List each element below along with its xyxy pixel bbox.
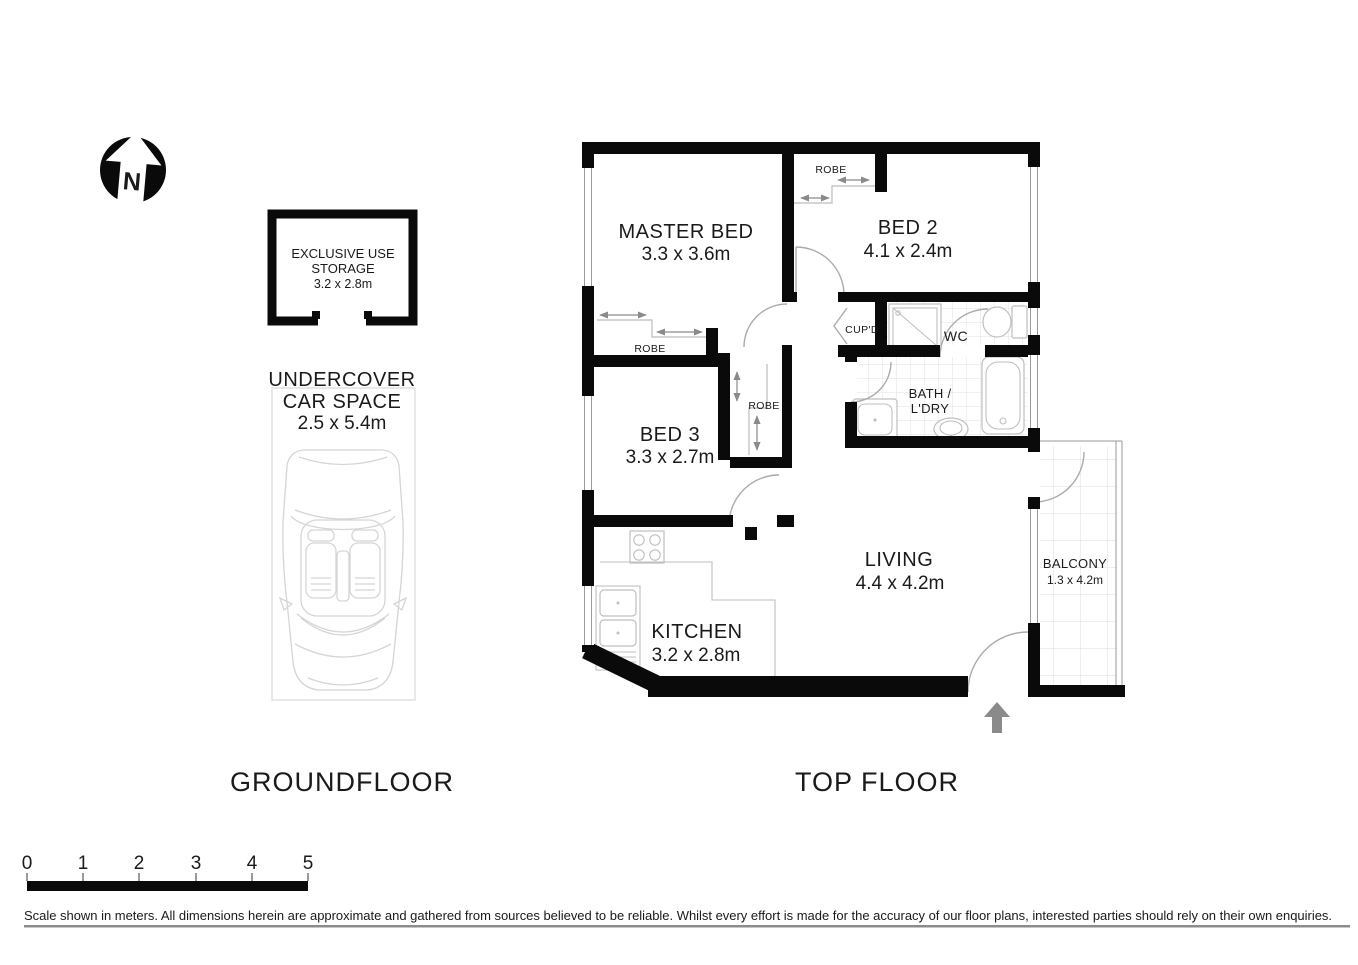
living-dims: 4.4 x 4.2m	[856, 573, 945, 594]
scale-tick-2: 2	[134, 853, 145, 874]
robe-master-label: ROBE	[634, 343, 665, 355]
scale-tick-1: 1	[78, 853, 89, 874]
master-door	[744, 304, 787, 347]
bed2-dims: 4.1 x 2.4m	[864, 241, 953, 262]
bed2-name: BED 2	[878, 217, 938, 239]
scale-tick-3: 3	[191, 853, 202, 874]
bathtub	[982, 357, 1024, 434]
topfloor-title: TOP FLOOR	[795, 767, 959, 797]
bed3-door	[729, 475, 779, 525]
bed2-door	[796, 247, 844, 295]
bath-name-line2: L'DRY	[911, 401, 949, 416]
groundfloor-title: GROUNDFLOOR	[230, 767, 454, 797]
robe-bed3-label: ROBE	[748, 400, 779, 412]
cupboard-name: CUP'D	[845, 324, 879, 336]
master-bed-name: MASTER BED	[618, 221, 753, 243]
north-letter: N	[122, 167, 142, 196]
north-arrow-icon: N	[100, 130, 166, 210]
balcony-name: BALCONY	[1043, 556, 1107, 571]
bed2-window	[1028, 167, 1040, 282]
robe-bed2-label: ROBE	[815, 164, 846, 176]
carspace-label-line2: CAR SPACE	[283, 391, 402, 413]
storage-label-line1: EXCLUSIVE USE	[291, 246, 395, 261]
floorplan-canvas: N EXCLUSIVE USE STORAGE 3.2 x 2.8m UNDER…	[0, 0, 1358, 960]
scale-tick-0: 0	[22, 853, 33, 874]
living-balcony-window	[1028, 509, 1040, 623]
kitchen-name: KITCHEN	[651, 621, 742, 643]
living-name: LIVING	[865, 549, 934, 571]
balcony-dims: 1.3 x 4.2m	[1047, 573, 1103, 587]
robe-bed3: ROBE	[737, 364, 780, 455]
entry-door	[968, 632, 1028, 692]
robe-master: ROBE	[597, 315, 706, 355]
car-space: UNDERCOVER CAR SPACE 2.5 x 5.4m	[268, 369, 415, 700]
bath-name-line1: BATH /	[909, 386, 952, 401]
wc-name: WC	[944, 328, 968, 344]
footer-divider	[24, 925, 1350, 928]
laundry-tub	[853, 399, 897, 440]
storage-label-line2: STORAGE	[311, 261, 375, 276]
master-window	[582, 168, 594, 286]
scale-bar-rule	[27, 881, 308, 891]
carspace-dims: 2.5 x 5.4m	[298, 413, 387, 434]
entry-arrow-icon	[984, 702, 1010, 733]
storage-dims: 3.2 x 2.8m	[314, 277, 372, 291]
bed3-window	[582, 396, 594, 490]
storage-room: EXCLUSIVE USE STORAGE 3.2 x 2.8m	[272, 214, 413, 326]
master-bed-dims: 3.3 x 3.6m	[642, 244, 731, 265]
scale-tick-5: 5	[303, 853, 314, 874]
stove	[630, 531, 664, 563]
toilet	[983, 306, 1027, 338]
scale-tick-4: 4	[247, 853, 258, 874]
scale-bar: 0 1 2 3 4 5	[22, 853, 314, 891]
robe-bed2: ROBE	[794, 164, 875, 203]
car-illustration	[280, 450, 406, 690]
wc-window	[1028, 308, 1040, 335]
bed3-name: BED 3	[640, 424, 700, 446]
bed3-dims: 3.3 x 2.7m	[626, 447, 715, 468]
top-floor-plan: ROBE ROBE ROBE	[582, 142, 1125, 733]
bath-window	[1028, 355, 1040, 428]
disclaimer-text: Scale shown in meters. All dimensions he…	[24, 908, 1332, 923]
kitchen-dims: 3.2 x 2.8m	[652, 645, 741, 666]
shower	[889, 304, 941, 350]
ground-floor-plan: N EXCLUSIVE USE STORAGE 3.2 x 2.8m UNDER…	[100, 130, 416, 700]
kitchen-window	[582, 586, 594, 645]
